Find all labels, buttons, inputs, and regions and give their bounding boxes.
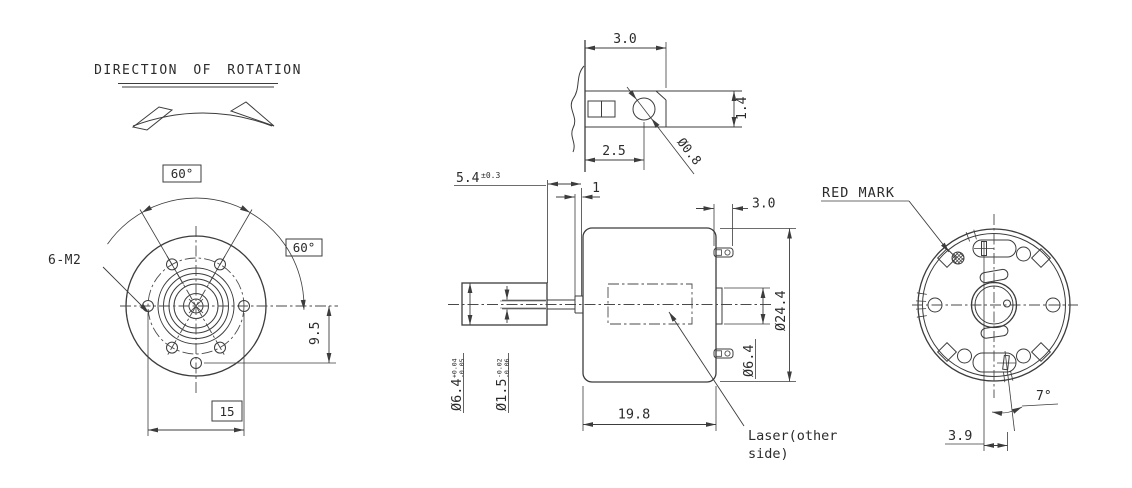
rear-bearing-boss — [716, 288, 722, 324]
terminal-linework — [571, 40, 742, 172]
front-bearing-boss — [462, 283, 547, 325]
rear-hole — [958, 349, 972, 363]
dimension-front-boss-dia: Ø6.4 +0.04 -0.05 — [449, 283, 470, 413]
thread-callout: 6-M2 — [48, 253, 149, 313]
red-mark-dot — [952, 252, 964, 264]
vent-slot-bottom — [980, 325, 1008, 339]
rotation-arrow-icon — [133, 102, 274, 130]
dimension-hole-position: 2.5 — [585, 122, 644, 170]
body-length-value: 19.8 — [618, 407, 651, 423]
rear-hole — [1017, 349, 1031, 363]
side-view: 5.4 ±0.3 1 3.0 Ø24.4 — [448, 171, 837, 462]
dimension-shaft-ext: 5.4 ±0.3 — [454, 171, 582, 296]
rear-hole — [1017, 247, 1031, 261]
rear-linework — [912, 214, 1078, 451]
dimension-rear-boss-dia: Ø6.4 — [724, 288, 770, 379]
dimension-pin-offset: 3.9 — [945, 428, 1008, 451]
laser-note-line1: Laser(other — [748, 428, 837, 444]
pin-offset-value: 3.9 — [948, 428, 972, 444]
laser-note-line2: side) — [748, 446, 789, 462]
hole-dia-value: Ø0.8 — [674, 135, 704, 168]
shaft-dia-value: Ø1.5 — [494, 378, 510, 411]
dimension-body-dia: Ø24.4 — [720, 229, 796, 382]
washer-value: 1 — [592, 181, 600, 196]
dimension-pin-angle: 7° — [992, 389, 1058, 416]
front-boss-dia-value: Ø6.4 — [449, 378, 465, 411]
direction-of-rotation-label: DIRECTION OF ROTATION — [94, 63, 302, 78]
body-dia-value: Ø24.4 — [773, 290, 789, 331]
dimension-tab-projection: 3.0 — [696, 197, 775, 247]
pin-angle-value: 7° — [1036, 389, 1052, 404]
laser-note: Laser(other side) — [669, 312, 837, 462]
front-view: DIRECTION OF ROTATION — [48, 63, 338, 436]
drawing-svg: DIRECTION OF ROTATION — [0, 0, 1132, 488]
angle-dimension-60: 60° 60° — [108, 165, 323, 310]
dimension-tab-width: 1.4 — [734, 91, 750, 127]
red-mark-label: RED MARK — [822, 185, 895, 201]
thread-callout-label: 6-M2 — [48, 253, 81, 268]
front-boss-tol-lo: -0.05 — [458, 358, 466, 378]
tab-projection-value: 3.0 — [752, 197, 775, 212]
motor-body — [583, 228, 716, 382]
rear-boss-dia-value: Ø6.4 — [741, 344, 757, 377]
laser-mark-area — [608, 284, 692, 324]
tab-width-value: 1.4 — [735, 96, 750, 120]
hole-position-value: 2.5 — [602, 144, 625, 159]
terminal-detail-view: Ø0.8 3.0 2.5 1.4 — [571, 32, 750, 174]
dimension-body-length: 19.8 — [583, 386, 716, 431]
red-mark-callout: RED MARK — [821, 185, 949, 252]
shaft-ext-tol: ±0.3 — [481, 171, 500, 180]
angle-top-value: 60° — [171, 166, 194, 181]
shaft-tol-lo: -0.06 — [503, 358, 511, 378]
shaft-ext-value: 5.4 — [456, 171, 480, 186]
title-underline — [118, 84, 278, 88]
dimension-tab-length: 3.0 — [585, 32, 666, 88]
dimension-shaft-dia: Ø1.5 -0.02 -0.06 — [494, 286, 546, 413]
angle-side-value: 60° — [293, 240, 316, 255]
rear-view: RED MARK 7° 3.9 — [821, 185, 1078, 451]
tab-length-value: 3.0 — [613, 32, 636, 47]
mount-width-value: 15 — [219, 404, 234, 419]
motor-dimension-drawing: DIRECTION OF ROTATION — [0, 0, 1132, 488]
center-pin-hole — [1004, 300, 1011, 307]
dimension-washer: 1 — [556, 181, 600, 296]
hole-offset-value: 9.5 — [308, 322, 323, 345]
